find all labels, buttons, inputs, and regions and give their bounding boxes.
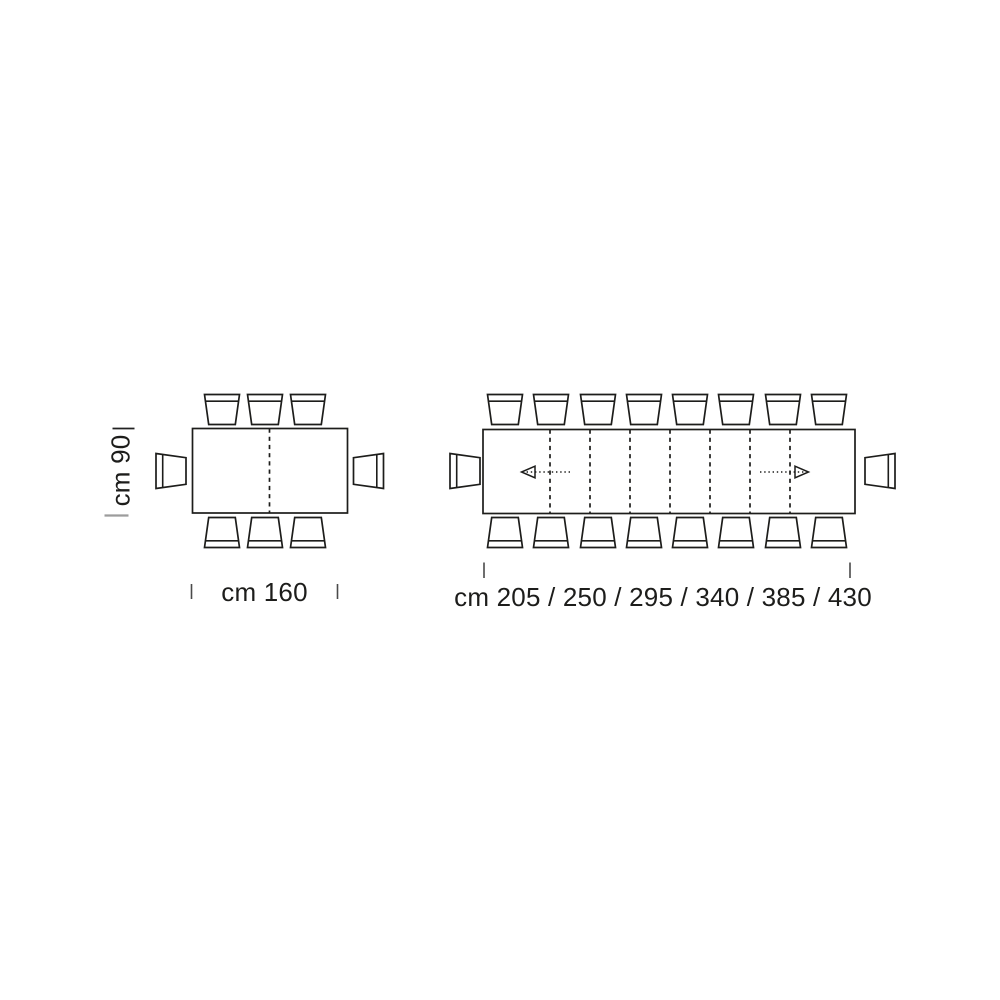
chair-icon [673,518,708,548]
chair-icon [719,395,754,425]
chair-icon [627,395,662,425]
chair-icon [248,395,283,425]
extending-width-dimension: cm 205 / 250 / 295 / 340 / 385 / 430 [454,563,872,613]
chair-icon [291,395,326,425]
chair-icon [291,518,326,548]
chair-icon [673,395,708,425]
depth-dimension: cm 90 [105,429,136,516]
chair-icon [488,518,523,548]
chair-icon [205,518,240,548]
chair-icon [354,454,384,489]
chair-icon [205,395,240,425]
depth-dimension-label: cm 90 [105,435,135,507]
chair-icon [581,518,616,548]
fixed-width-dimension-label: cm 160 [221,577,307,607]
chair-icon [812,395,847,425]
extending-table-diagram: cm 205 / 250 / 295 / 340 / 385 / 430 [450,395,895,613]
extending-width-dimension-label: cm 205 / 250 / 295 / 340 / 385 / 430 [454,582,872,612]
table-dimension-diagram: cm 90 cm 160 [0,0,1000,1000]
product-dimension-sheet: cm 90 cm 160 [0,0,1000,1000]
chair-icon [812,518,847,548]
chair-icon [534,395,569,425]
chair-icon [766,518,801,548]
chair-icon [488,395,523,425]
chair-icon [719,518,754,548]
fixed-width-dimension: cm 160 [192,577,338,607]
chair-icon [581,395,616,425]
chair-icon [627,518,662,548]
chair-icon [248,518,283,548]
chair-icon [865,454,895,489]
chair-icon [156,454,186,489]
fixed-table-diagram: cm 90 cm 160 [105,395,384,608]
chair-icon [450,454,480,489]
chair-icon [534,518,569,548]
chair-icon [766,395,801,425]
